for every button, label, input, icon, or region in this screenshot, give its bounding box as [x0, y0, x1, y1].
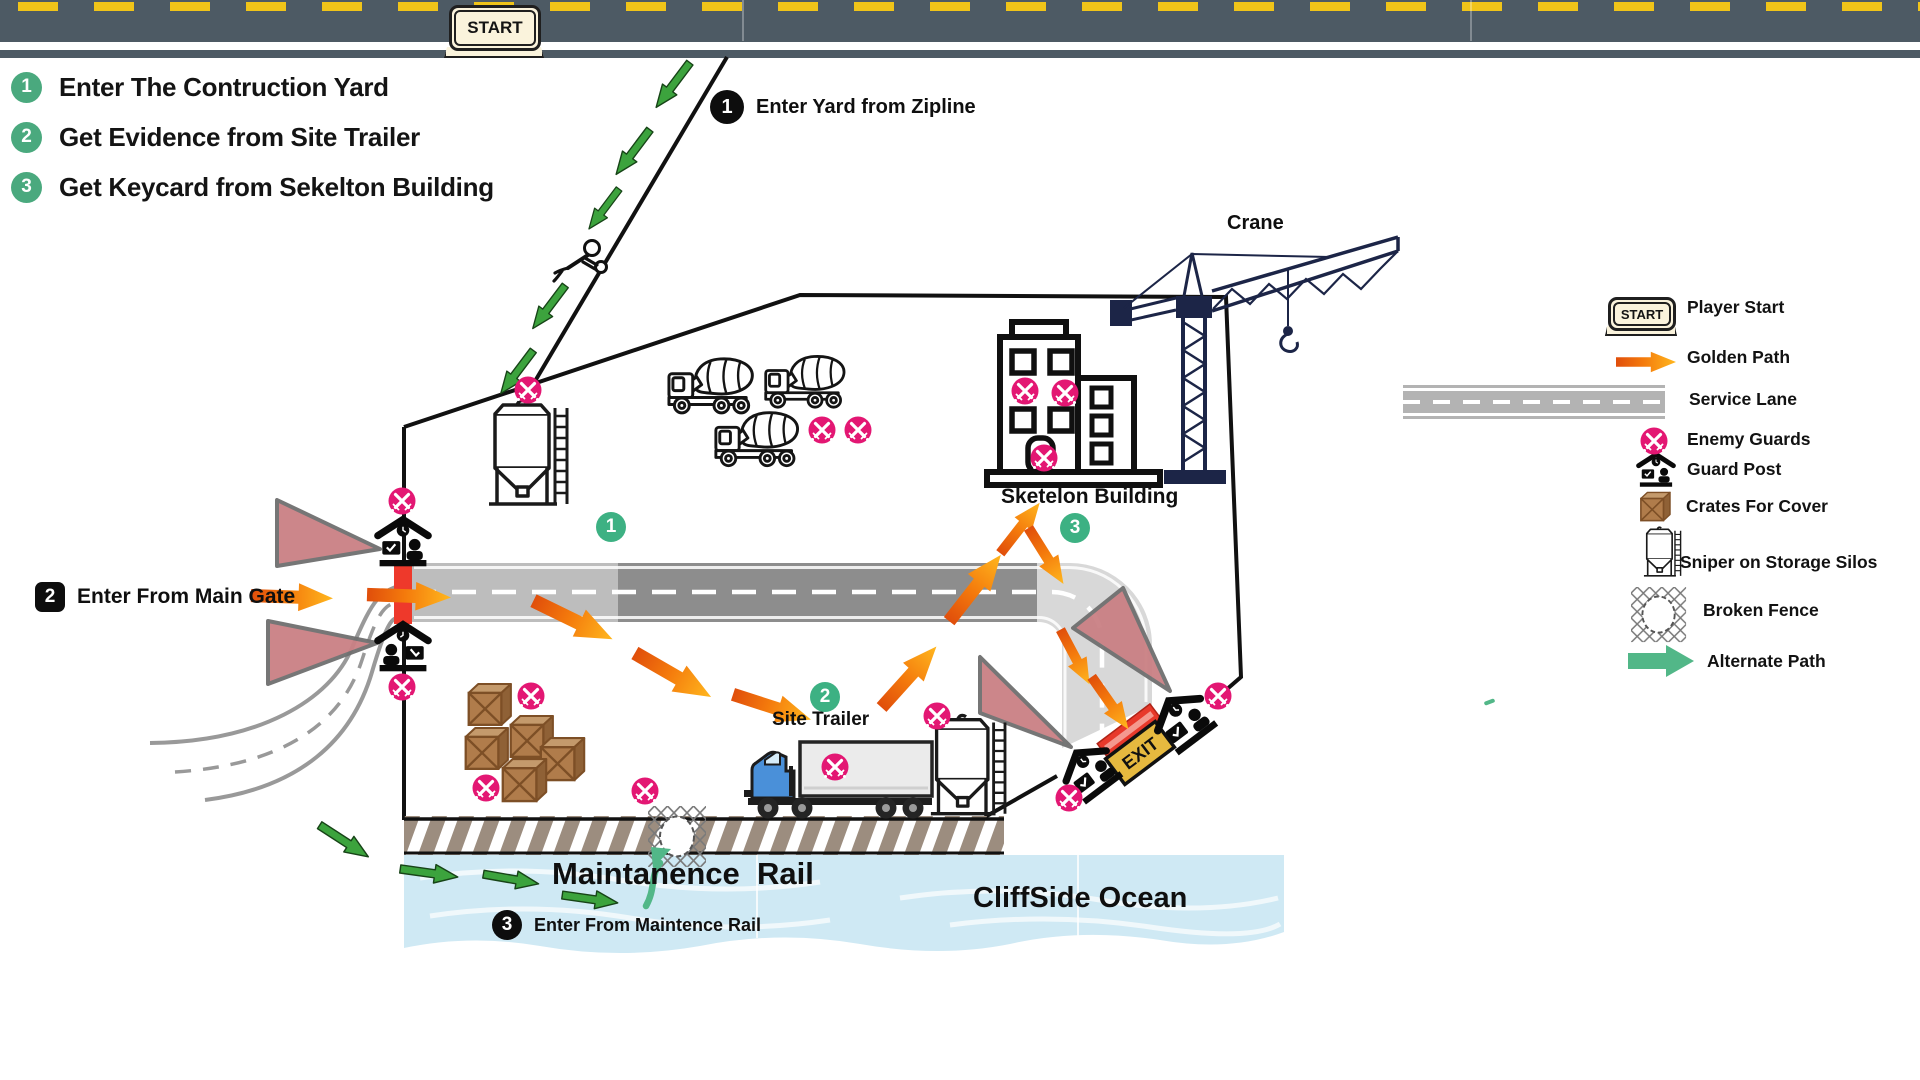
enemy-guard-badge [1031, 445, 1058, 472]
legend-label: Enemy Guards [1687, 429, 1811, 450]
crane-label: Crane [1227, 212, 1284, 235]
start-key: START [449, 5, 541, 51]
start-key-label: START [1621, 307, 1663, 322]
sketelon-building-label: Sketelon Building [1001, 485, 1178, 509]
entry-number-badge: 1 [710, 90, 744, 124]
enemy-guard-badge [473, 775, 500, 802]
map-overlay [0, 0, 1920, 1080]
enemy-guard-badge [389, 674, 416, 701]
enemy-guard-badge [809, 417, 836, 444]
legend-label: Crates For Cover [1686, 496, 1828, 517]
area-marker-2: 2 [810, 682, 840, 712]
enemy-guard-badge [632, 778, 659, 805]
entry-main-gate: 2 Enter From Main Gate [35, 582, 295, 612]
site-trailer-label: Site Trailer [772, 709, 869, 731]
enemy-guard-badge [924, 703, 951, 730]
entry-text: Enter From Maintence Rail [534, 915, 761, 936]
golden-path-arrow [527, 587, 619, 652]
enemy-guard-badge [1012, 378, 1039, 405]
alternate-path-arrow [315, 817, 374, 864]
alternate-path-arrow [526, 280, 572, 334]
enemy-guard-badge [1205, 683, 1232, 710]
enemy-guard-badge [822, 754, 849, 781]
alternate-path-arrow [649, 57, 697, 113]
start-key-label: START [467, 18, 522, 38]
start-key-legend-icon: START [1608, 297, 1676, 331]
entry-maintenance-rail: 3 Enter From Maintence Rail [492, 910, 761, 940]
cliffside-ocean-label: CliffSide Ocean [973, 882, 1187, 915]
entry-number-badge: 2 [35, 582, 65, 612]
enemy-guard-badge [518, 683, 545, 710]
entry-number-badge: 3 [492, 910, 522, 940]
legend-label: Sniper on Storage Silos [1680, 552, 1877, 573]
legend-label: Guard Post [1687, 459, 1781, 480]
entry-zipline: 1 Enter Yard from Zipline [710, 90, 976, 124]
legend-label: Broken Fence [1703, 600, 1819, 621]
area-marker-3: 3 [1060, 513, 1090, 543]
entry-text: Enter From Main Gate [77, 585, 295, 609]
area-marker-1: 1 [596, 512, 626, 542]
enemy-guard-badge [515, 377, 542, 404]
legend-label: Golden Path [1687, 347, 1790, 368]
golden-path-arrow [1083, 671, 1138, 736]
alternate-path-arrow [482, 865, 540, 892]
golden-path-legend-icon [1616, 352, 1676, 372]
enemy-guard-badge [389, 488, 416, 515]
alternate-path-arrow [399, 860, 459, 886]
alternate-path-arrow [609, 124, 657, 180]
level-design-diagram: START 1 Enter The Contruction Yard 2 Get… [0, 0, 1920, 1080]
legend-label: Service Lane [1689, 389, 1797, 410]
maintanence-rail-label: Maintanence Rail [552, 856, 814, 892]
service-lane-legend-icon [1403, 385, 1665, 419]
enemy-guard-legend-icon [1641, 428, 1668, 455]
golden-path-arrow [367, 580, 452, 611]
entry-text: Enter Yard from Zipline [756, 96, 976, 119]
legend-label: Alternate Path [1707, 651, 1826, 672]
golden-path-arrow [627, 640, 718, 710]
enemy-guard-badge [1056, 785, 1083, 812]
golden-path-arrow [938, 546, 1012, 630]
alternate-path-arrow [583, 184, 626, 234]
enemy-guard-badge [845, 417, 872, 444]
legend-label: Player Start [1687, 297, 1784, 318]
enemy-guard-badge [1052, 380, 1079, 407]
